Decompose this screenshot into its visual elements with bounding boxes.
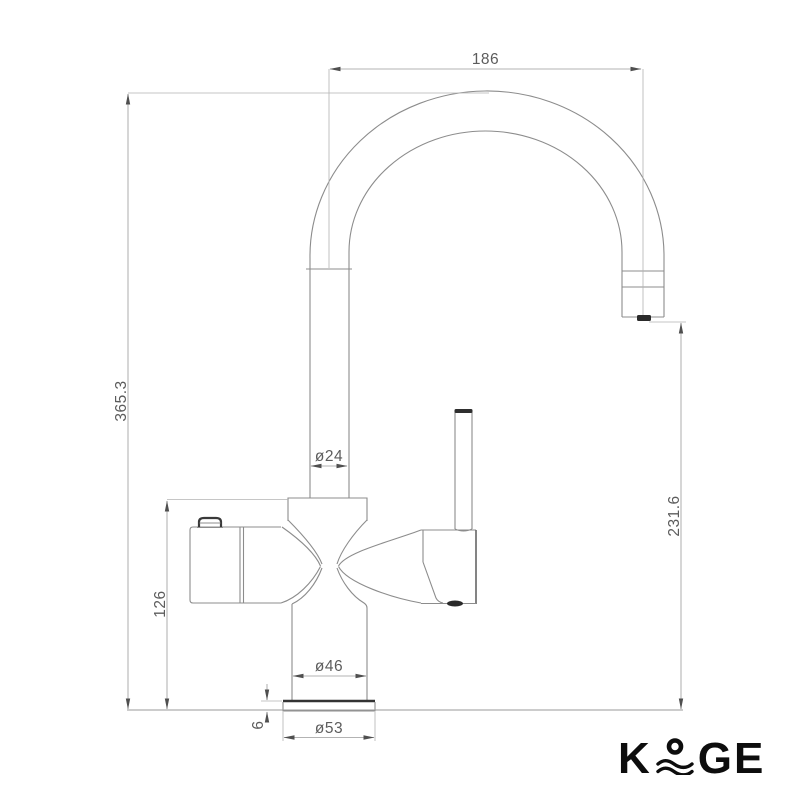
handle-lever-sides — [455, 412, 472, 529]
spout-outer-arc — [310, 91, 664, 258]
arrowhead — [165, 699, 169, 710]
arrowhead — [356, 674, 367, 678]
logo-letter-k: K — [618, 742, 652, 775]
dimension-body-height: 126 — [152, 501, 169, 710]
junction-upper-right-outer — [337, 520, 367, 564]
dimension-spout-diameter: ø24 — [311, 448, 348, 468]
dimension-overall-height: 365.3 — [113, 94, 130, 710]
dimension-label-overall-height: 365.3 — [113, 380, 130, 421]
logo-o-waves-icon — [655, 738, 695, 775]
aerator-nozzle — [637, 315, 651, 321]
dimension-base-diameter: ø53 — [284, 720, 375, 740]
arrowhead — [364, 735, 375, 739]
arrowhead — [293, 674, 304, 678]
arrowhead — [165, 501, 169, 512]
arrowhead — [679, 699, 683, 710]
extension-lines — [128, 69, 686, 741]
dimension-label-spout-reach: 186 — [472, 51, 499, 68]
dimension-label-body-diameter: ø46 — [315, 658, 343, 675]
dimension-label-base-thickness: 6 — [250, 720, 267, 729]
dimension-body-diameter: ø46 — [293, 658, 367, 678]
dimension-label-body-height: 126 — [152, 590, 169, 617]
faucet-dimension-drawing: 186 365.3 126 231.6 ø24 — [0, 0, 800, 800]
arrowhead — [631, 67, 642, 71]
junction-upper-left-inner — [282, 527, 321, 566]
dimension-label-outlet-height: 231.6 — [666, 495, 683, 536]
dimension-base-thickness: 6 — [250, 684, 269, 730]
dimension-label-spout-diameter: ø24 — [315, 448, 343, 465]
dimension-outlet-height: 231.6 — [666, 323, 683, 710]
koge-logo: K GE — [618, 733, 765, 775]
right-mount-under-shadow — [447, 601, 463, 607]
arrowhead — [284, 735, 295, 739]
junction-lower-left-inner — [281, 567, 321, 604]
logo-letters-ge: GE — [698, 742, 766, 775]
arrowhead — [265, 690, 269, 701]
technical-drawing-page: 186 365.3 126 231.6 ø24 — [0, 0, 800, 800]
arrowhead — [330, 67, 341, 71]
handle-lever-top-cap — [455, 409, 473, 413]
arrowhead — [126, 699, 130, 710]
faucet-outline — [127, 91, 683, 711]
spout-inner-arc — [349, 131, 622, 252]
junction-lower-right-inner — [339, 567, 422, 604]
arrowhead — [679, 323, 683, 334]
right-mount-inner-diagonal — [423, 562, 443, 603]
junction-upper-right-inner — [339, 530, 422, 566]
junction-upper-left-outer — [288, 520, 322, 564]
dimension-spout-reach: 186 — [330, 51, 642, 71]
junction-lower-right-column — [337, 568, 367, 608]
arrowhead — [126, 94, 130, 105]
body-shoulder — [288, 498, 367, 521]
dimension-label-base-diameter: ø53 — [315, 720, 343, 737]
left-knob-body — [190, 527, 281, 603]
